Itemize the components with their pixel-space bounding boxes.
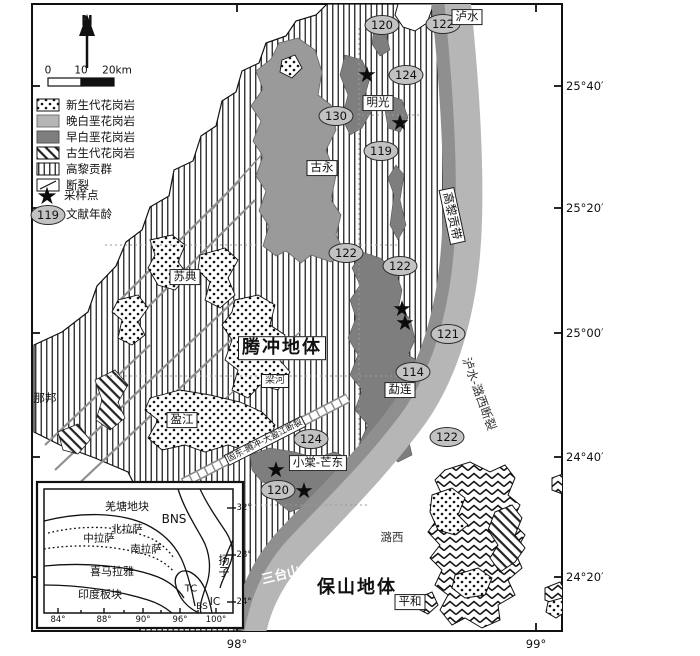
legend-label: 高黎贡群 xyxy=(66,161,112,177)
place-baoshan-terrane: 保山地体 xyxy=(317,577,397,599)
legend-label-sample: 采样点 xyxy=(64,189,99,203)
place-lushui: 泸水 xyxy=(452,9,483,25)
inset-ytick-28: 28° xyxy=(236,550,251,560)
age-oval: 130 xyxy=(319,106,354,126)
lat-label-2420: 24°20′ xyxy=(566,570,604,584)
paleozoic-swatch-icon xyxy=(36,146,60,160)
lat-label-2500: 25°00′ xyxy=(566,326,604,340)
sample-star: ★ xyxy=(266,460,286,482)
lon-label-98: 98° xyxy=(227,637,247,651)
sample-star: ★ xyxy=(395,313,415,335)
inset-central-lhasa: 中拉萨 xyxy=(83,531,115,546)
scale-20km-label: 20km xyxy=(102,65,132,78)
inset-himalaya: 喜马拉雅 xyxy=(90,563,134,579)
place-pinghe: 平和 xyxy=(395,594,426,610)
age-oval: 124 xyxy=(294,429,329,449)
place-sudian: 苏典 xyxy=(170,269,201,285)
early-cretaceous-swatch-icon xyxy=(36,130,60,144)
legend-item-early-cretaceous: 早白垩花岗岩 xyxy=(36,129,135,145)
legend-label-age: 文献年龄 xyxy=(66,208,112,222)
inset-bns: BNS xyxy=(162,512,187,526)
place-mingguang: 明光 xyxy=(363,95,394,111)
age-oval: 114 xyxy=(396,362,431,382)
legend-age-oval: 119 xyxy=(31,205,66,225)
scale-bar xyxy=(48,78,114,86)
age-oval: 121 xyxy=(431,324,466,344)
legend-label: 早白垩花岗岩 xyxy=(66,129,135,145)
legend-label: 新生代花岗岩 xyxy=(66,97,135,113)
age-oval: 120 xyxy=(365,15,400,35)
inset-xtick-90: 90° xyxy=(135,615,150,625)
inset-ytick-24: 24° xyxy=(236,597,251,607)
scale-0-label: 0 xyxy=(45,65,52,78)
inset-xtick-84: 84° xyxy=(50,615,65,625)
age-oval: 124 xyxy=(389,65,424,85)
inset-xtick-96: 96° xyxy=(172,615,187,625)
place-xiaotang-mangdong: 小棠-芒东 xyxy=(289,455,347,471)
cenozoic-swatch-icon xyxy=(36,98,60,112)
place-yingjiang: 盈江 xyxy=(167,412,198,428)
age-oval: 119 xyxy=(364,141,399,161)
legend-item-paleozoic: 古生代花岗岩 xyxy=(36,145,135,161)
age-oval: 122 xyxy=(383,256,418,276)
legend-item-gaoligong-group: 高黎贡群 xyxy=(36,161,112,177)
inset-ic: IC xyxy=(210,596,220,608)
inset-bs: BS xyxy=(196,602,208,612)
inset-ytick-32: 32° xyxy=(236,503,251,513)
geological-map-figure: N 0 10 20km 新生代花岗岩 晚白垩花岗岩 早白垩花岗岩 古生代花岗岩 … xyxy=(0,0,700,656)
inset-india-plate: 印度板块 xyxy=(78,586,122,602)
inset-south-lhasa: 南拉萨 xyxy=(130,542,162,557)
lat-label-2440: 24°40′ xyxy=(566,450,604,464)
place-menglian: 勐连 xyxy=(385,382,416,398)
legend-label: 古生代花岗岩 xyxy=(66,145,135,161)
gaoligong-group-swatch-icon xyxy=(36,162,60,176)
sample-star: ★ xyxy=(357,65,377,87)
scale-10-label: 10 xyxy=(74,65,87,78)
place-tengchong-terrane: 腾冲地体 xyxy=(238,336,326,360)
sample-star: ★ xyxy=(390,113,410,135)
legend-item-cenozoic: 新生代花岗岩 xyxy=(36,97,135,113)
legend-label: 晚白垩花岗岩 xyxy=(66,113,135,129)
late-cretaceous-swatch-icon xyxy=(36,114,60,128)
age-oval: 122 xyxy=(430,427,465,447)
place-guyong: 古永 xyxy=(307,160,338,176)
sample-star: ★ xyxy=(294,481,314,503)
inset-north-lhasa: 北拉萨 xyxy=(111,522,143,537)
place-nabang: 那邦 xyxy=(34,392,57,406)
inset-xtick-88: 88° xyxy=(96,615,111,625)
age-oval: 120 xyxy=(261,480,296,500)
north-label: N xyxy=(81,14,93,31)
lat-label-2540: 25°40′ xyxy=(566,79,604,93)
place-luxi: 潞西 xyxy=(381,531,404,545)
legend-item-late-cretaceous: 晚白垩花岗岩 xyxy=(36,113,135,129)
lat-label-2520: 25°20′ xyxy=(566,201,604,215)
place-lianghe: 梁河 xyxy=(261,374,289,388)
age-oval: 122 xyxy=(329,243,364,263)
inset-yangtze: 扬子 xyxy=(217,554,231,577)
lon-label-99: 99° xyxy=(526,637,546,651)
inset-tc: TC xyxy=(185,584,198,595)
inset-xtick-100: 100° xyxy=(206,615,226,625)
inset-qiangtang: 羌塘地块 xyxy=(105,498,149,514)
